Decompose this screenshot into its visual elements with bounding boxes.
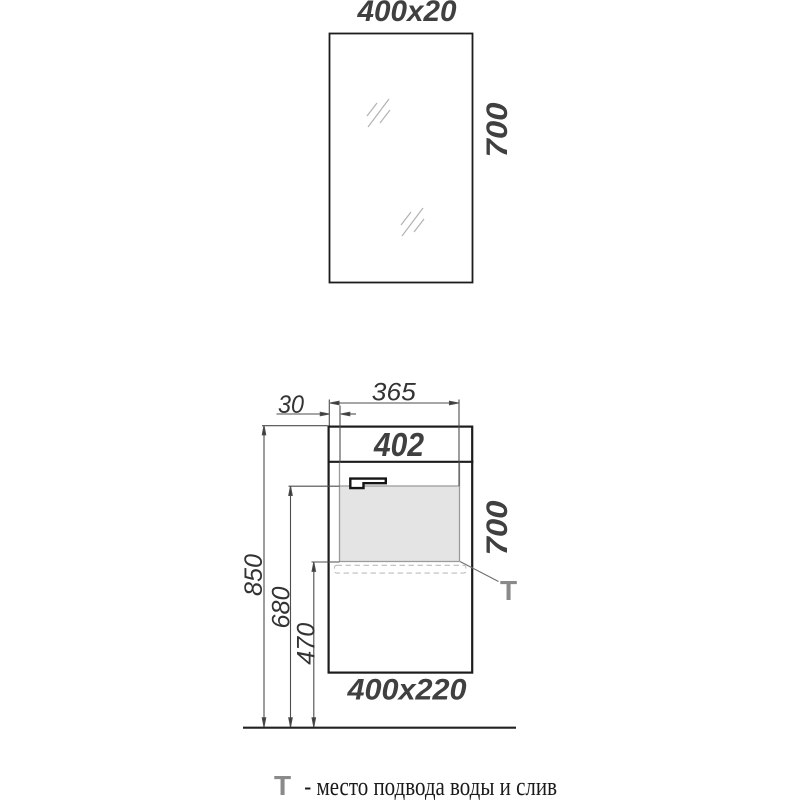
svg-text:30: 30 [278, 391, 304, 419]
svg-text:365: 365 [372, 379, 416, 407]
svg-text:470: 470 [293, 623, 321, 665]
svg-text:T: T [500, 575, 517, 606]
svg-text:850: 850 [240, 554, 268, 596]
svg-text:400x20: 400x20 [357, 0, 457, 28]
svg-text:680: 680 [268, 586, 296, 628]
svg-text:700: 700 [481, 500, 514, 555]
svg-text:402: 402 [373, 426, 424, 463]
svg-text:700: 700 [481, 102, 514, 157]
svg-text:400x220: 400x220 [346, 674, 466, 707]
svg-text:Т - место подвода воды и слив: Т - место подвода воды и слив [274, 770, 557, 800]
